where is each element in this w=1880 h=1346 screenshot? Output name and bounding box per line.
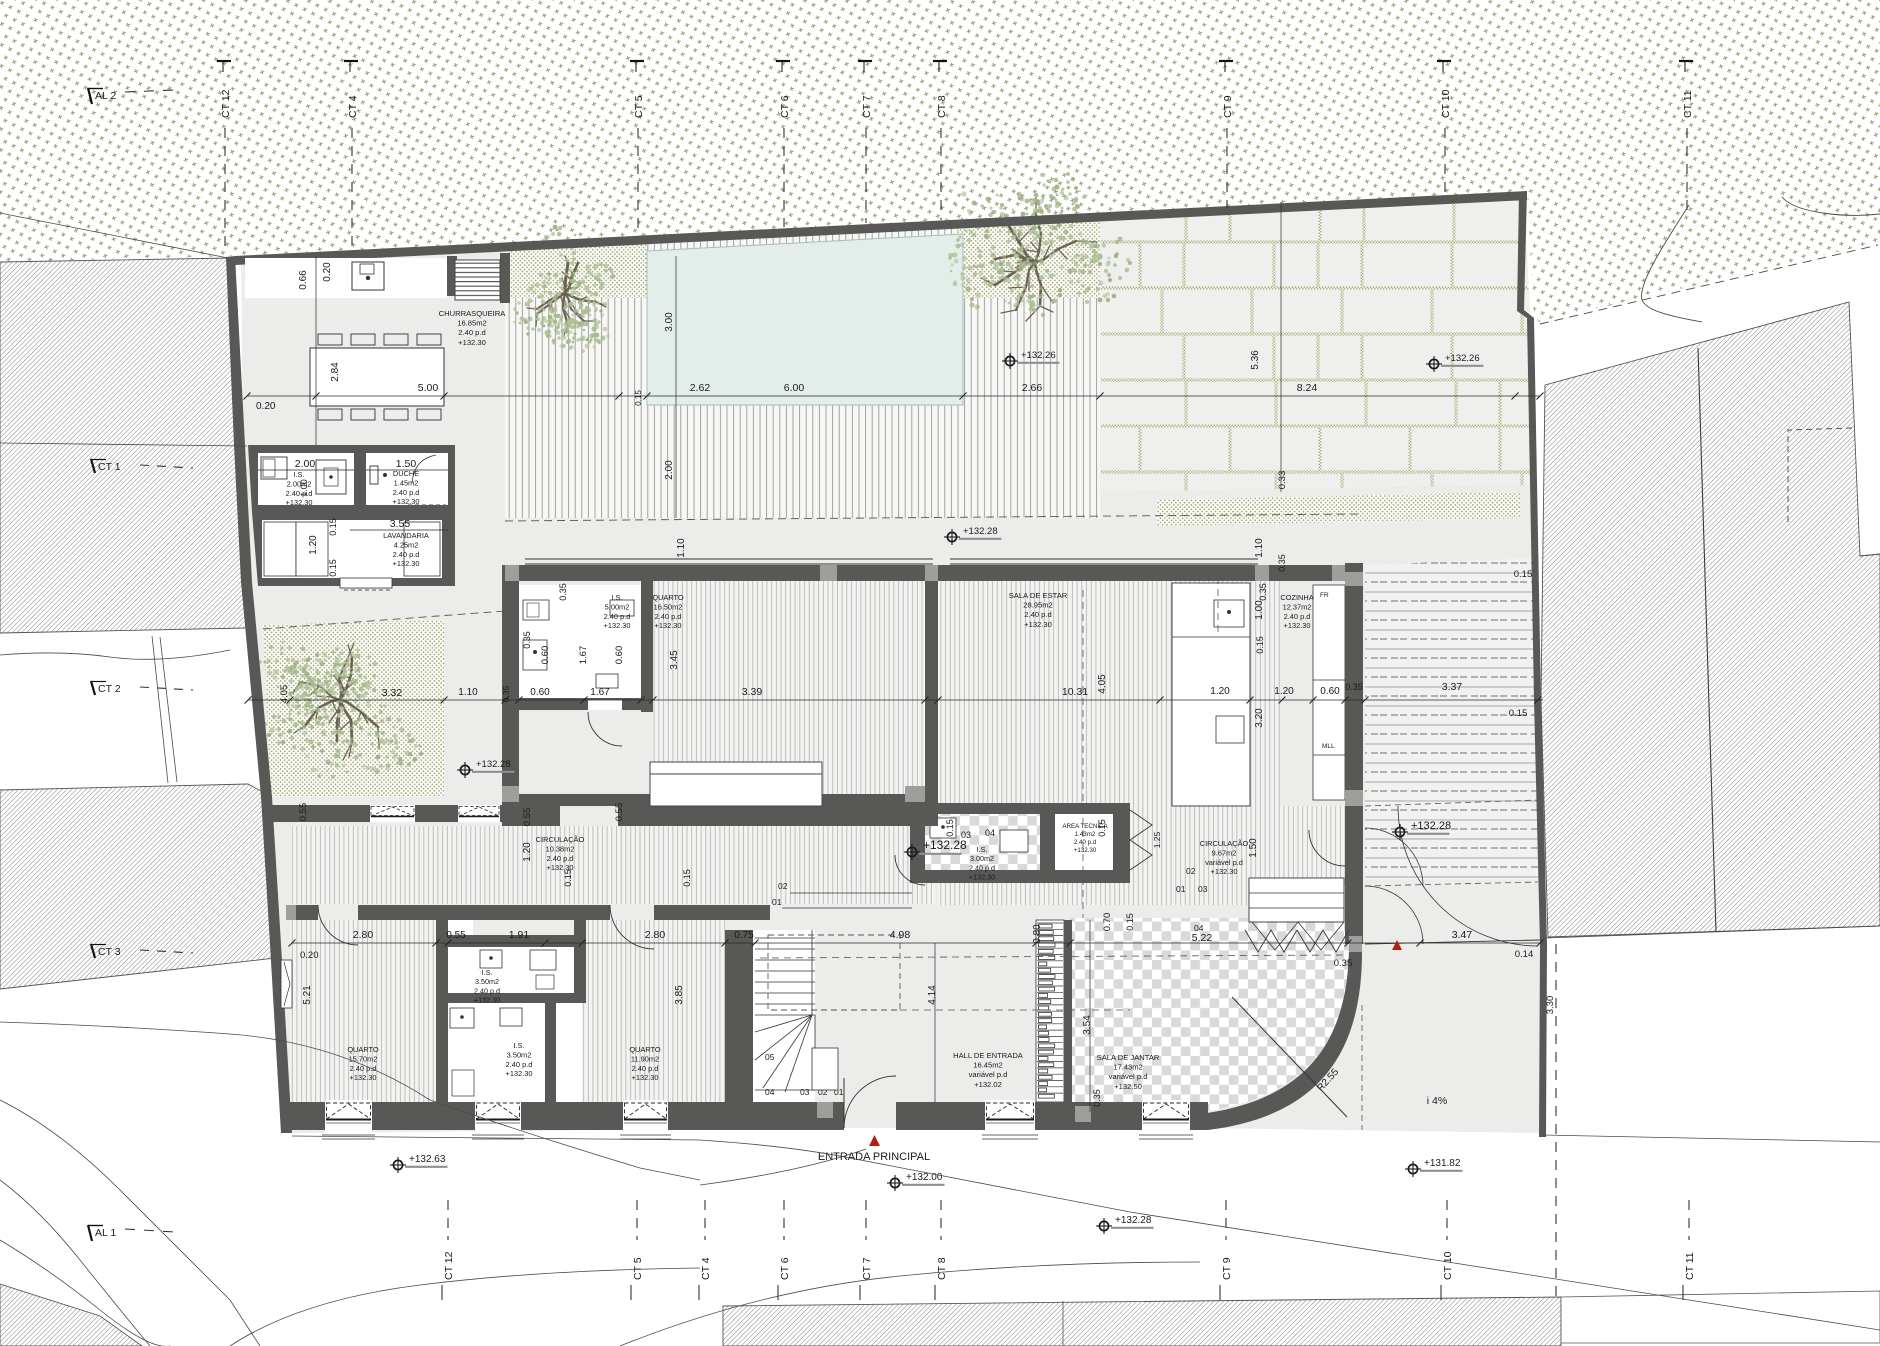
svg-text:1.10: 1.10 [458,687,478,698]
svg-text:2.40 p.d: 2.40 p.d [655,612,682,621]
svg-text:12.37m2: 12.37m2 [1283,602,1312,611]
svg-text:0.20: 0.20 [300,950,319,961]
svg-text:2.40 p.d: 2.40 p.d [474,986,500,995]
svg-text:CT 4: CT 4 [700,1257,712,1280]
svg-text:+132.26: +132.26 [1445,353,1480,364]
svg-text:1.67: 1.67 [578,646,589,665]
svg-text:CIRCULAÇÃO: CIRCULAÇÃO [536,835,585,844]
svg-text:I.S.: I.S. [513,1041,524,1050]
svg-text:+132.30: +132.30 [474,996,500,1005]
svg-text:02: 02 [1186,866,1196,876]
svg-text:AL 2: AL 2 [95,90,116,102]
svg-text:0.20: 0.20 [256,401,276,412]
svg-text:+132.30: +132.30 [1284,621,1311,630]
svg-text:+132.02: +132.02 [974,1080,1002,1089]
svg-text:3.00m2: 3.00m2 [970,854,994,863]
svg-text:4.98: 4.98 [890,929,911,941]
svg-text:+132.30: +132.30 [458,338,486,347]
svg-text:CT 8: CT 8 [936,95,948,118]
svg-text:I.S.: I.S. [977,845,988,854]
svg-text:5.00m2: 5.00m2 [605,602,630,611]
svg-text:+132.30: +132.30 [1211,867,1238,876]
svg-text:variável p.d: variável p.d [969,1070,1008,1079]
svg-text:FR: FR [1320,592,1329,599]
svg-text:2.00m2: 2.00m2 [287,479,312,488]
svg-text:2.40 p.d: 2.40 p.d [1024,610,1051,619]
svg-text:0.35: 0.35 [501,685,511,702]
svg-text:04: 04 [765,1087,775,1097]
svg-text:i 4%: i 4% [1427,1095,1447,1107]
svg-text:2.80: 2.80 [645,929,666,941]
svg-text:3.39: 3.39 [742,686,763,698]
svg-text:3.37: 3.37 [1442,681,1463,693]
svg-text:4.05: 4.05 [279,685,290,704]
svg-text:I.S.: I.S. [293,470,304,479]
svg-text:2.40 p.d: 2.40 p.d [393,550,420,559]
svg-text:16.85m2: 16.85m2 [457,319,487,328]
svg-text:+132.30: +132.30 [1024,620,1052,629]
svg-text:02: 02 [778,881,788,891]
svg-text:0.35: 0.35 [1345,682,1363,692]
svg-text:0.66: 0.66 [298,270,309,290]
svg-text:+132.30: +132.30 [969,873,995,882]
svg-text:variável p.d: variável p.d [1205,858,1243,867]
svg-text:CT 12: CT 12 [443,1251,455,1280]
svg-text:0.15: 0.15 [682,869,692,887]
svg-text:0.55: 0.55 [446,930,466,941]
svg-text:CT 8: CT 8 [936,1257,948,1280]
svg-text:HALL DE ENTRADA: HALL DE ENTRADA [953,1051,1024,1060]
svg-text:MLL: MLL [1322,743,1335,750]
svg-text:1.91: 1.91 [509,929,530,941]
svg-text:2.40 p.d: 2.40 p.d [506,1060,533,1069]
svg-text:+132.28: +132.28 [1411,820,1451,832]
svg-text:11.90m2: 11.90m2 [631,1054,659,1063]
svg-text:AREA TECNICA: AREA TECNICA [1062,823,1108,830]
svg-text:0.35: 0.35 [558,583,568,601]
svg-text:1.25: 1.25 [1152,831,1162,848]
svg-text:CT 12: CT 12 [220,89,232,118]
svg-text:1.10: 1.10 [1254,538,1265,558]
svg-text:3.30: 3.30 [1545,996,1556,1015]
svg-text:CT 5: CT 5 [632,1257,644,1280]
svg-text:+132.28: +132.28 [963,526,998,537]
svg-text:5.21: 5.21 [302,985,313,1005]
svg-text:0.15: 0.15 [945,819,955,837]
svg-text:0.55: 0.55 [298,803,309,822]
svg-text:LAVANDARIA: LAVANDARIA [383,531,429,540]
svg-text:0.60: 0.60 [1320,686,1340,697]
svg-text:16.50m2: 16.50m2 [654,602,683,611]
svg-text:0.15: 0.15 [1255,636,1265,654]
svg-text:I.S.: I.S. [611,593,622,602]
svg-text:9.67m2: 9.67m2 [1212,848,1237,857]
svg-text:+132.30: +132.30 [655,621,682,630]
svg-text:+132.30: +132.30 [350,1073,377,1082]
svg-text:2.40 p.d: 2.40 p.d [632,1064,659,1073]
svg-text:ENTRADA PRINCIPAL: ENTRADA PRINCIPAL [818,1151,930,1163]
svg-text:1.20: 1.20 [522,842,533,862]
svg-text:0.15: 0.15 [1514,569,1533,580]
svg-text:+132.30: +132.30 [393,497,420,506]
svg-text:CT 6: CT 6 [779,1257,791,1280]
svg-text:3.20: 3.20 [1254,708,1265,728]
svg-text:1.20: 1.20 [1210,686,1230,697]
svg-text:0.15: 0.15 [634,390,643,406]
svg-text:CT 10: CT 10 [1440,89,1452,118]
svg-text:2.40 p.d: 2.40 p.d [1284,612,1311,621]
svg-text:CT 10: CT 10 [1442,1251,1454,1280]
svg-text:0.60: 0.60 [540,646,551,665]
svg-text:DUCHE: DUCHE [393,469,419,478]
svg-text:8.24: 8.24 [1297,382,1318,394]
svg-text:3.50m2: 3.50m2 [507,1050,532,1059]
svg-text:05: 05 [765,1052,775,1062]
svg-text:0.80: 0.80 [1032,924,1043,944]
svg-text:2.80: 2.80 [353,929,374,941]
svg-text:0.15: 0.15 [1509,708,1528,719]
svg-text:+132.26: +132.26 [1021,350,1056,361]
svg-text:AL 1: AL 1 [95,1227,116,1239]
svg-text:2.40 p.d: 2.40 p.d [393,488,420,497]
svg-text:+132.28: +132.28 [923,838,967,852]
svg-text:variável p.d: variável p.d [1109,1072,1148,1081]
svg-text:1.50: 1.50 [1248,838,1259,858]
svg-text:10.38m2: 10.38m2 [546,844,575,853]
svg-text:0.35: 0.35 [1092,1089,1102,1107]
svg-text:28.95m2: 28.95m2 [1023,601,1053,610]
svg-text:3.55: 3.55 [390,518,411,530]
svg-text:CT 2: CT 2 [98,683,121,695]
svg-text:4.05: 4.05 [1097,674,1108,694]
svg-text:CT 11: CT 11 [1682,90,1694,118]
svg-text:CT 3: CT 3 [98,946,121,958]
svg-text:0.15: 0.15 [328,559,338,577]
svg-text:+132.63: +132.63 [409,1154,446,1165]
svg-text:SALA DE JANTAR: SALA DE JANTAR [1097,1053,1160,1062]
svg-text:QUARTO: QUARTO [347,1045,379,1054]
svg-text:1.20: 1.20 [1274,686,1294,697]
svg-text:0.15: 0.15 [1125,913,1135,931]
svg-text:1.00: 1.00 [1254,600,1265,620]
svg-text:03: 03 [800,1087,810,1097]
svg-text:I.S.: I.S. [482,968,493,977]
svg-text:01: 01 [772,897,782,907]
svg-text:3.47: 3.47 [1452,929,1473,941]
svg-text:10.31: 10.31 [1062,686,1088,698]
svg-text:0.75: 0.75 [734,930,754,941]
svg-text:0.55: 0.55 [522,808,533,827]
svg-text:0.33: 0.33 [1277,471,1288,490]
svg-text:3.85: 3.85 [674,985,685,1005]
svg-text:0.60: 0.60 [530,687,550,698]
svg-text:15.70m2: 15.70m2 [349,1054,378,1063]
svg-text:1.45m2: 1.45m2 [394,478,419,487]
svg-text:0.20: 0.20 [322,262,333,282]
svg-text:CT 9: CT 9 [1221,1257,1233,1280]
svg-text:3.50m2: 3.50m2 [475,977,499,986]
svg-text:+132.30: +132.30 [286,498,313,507]
svg-text:+131.82: +131.82 [1424,1158,1461,1169]
svg-text:2.40 p.d: 2.40 p.d [547,854,574,863]
svg-text:0.14: 0.14 [1515,949,1534,960]
svg-text:CT 11: CT 11 [1684,1252,1696,1280]
svg-text:5.00: 5.00 [418,382,439,394]
svg-text:0.35: 0.35 [1334,958,1353,969]
svg-text:0.70: 0.70 [1102,913,1113,932]
svg-text:3.45: 3.45 [669,650,680,670]
svg-text:CT 1: CT 1 [98,461,121,473]
svg-text:3.54: 3.54 [1082,1015,1093,1035]
svg-text:+132.30: +132.30 [1074,847,1097,854]
svg-text:CHURRASQUEIRA: CHURRASQUEIRA [439,309,507,318]
svg-text:5.22: 5.22 [1192,932,1213,944]
svg-text:+132.30: +132.30 [632,1073,659,1082]
svg-text:2.62: 2.62 [690,382,711,394]
svg-text:01: 01 [1176,884,1186,894]
svg-text:2.40 p.d: 2.40 p.d [969,863,995,872]
svg-text:0.55: 0.55 [614,803,625,822]
svg-text:1.43m2: 1.43m2 [1075,831,1096,838]
svg-text:+132.30: +132.30 [604,621,631,630]
svg-text:+132.30: +132.30 [547,863,574,872]
svg-text:0.60: 0.60 [614,646,625,665]
svg-text:2.40 p.d: 2.40 p.d [286,489,313,498]
svg-text:QUARTO: QUARTO [629,1045,661,1054]
svg-text:3.00: 3.00 [664,312,675,332]
svg-text:0.35: 0.35 [1258,583,1268,601]
svg-text:CT 7: CT 7 [861,1257,873,1280]
svg-text:CT 5: CT 5 [633,95,645,118]
svg-text:6.00: 6.00 [784,382,805,394]
svg-text:2.00: 2.00 [664,460,675,480]
svg-text:2.40 p.d: 2.40 p.d [604,612,631,621]
svg-text:CT 7: CT 7 [861,95,873,118]
svg-text:CIRCULAÇÃO: CIRCULAÇÃO [1200,839,1249,848]
svg-text:1.10: 1.10 [676,538,687,558]
svg-text:+132.00: +132.00 [906,1172,943,1183]
svg-text:0.35: 0.35 [522,631,532,649]
svg-text:CT 9: CT 9 [1222,95,1234,118]
svg-text:0.15: 0.15 [328,518,338,536]
svg-text:2.40 p.d: 2.40 p.d [1074,839,1097,846]
svg-text:QUARTO: QUARTO [652,593,684,602]
svg-text:SALA DE ESTAR: SALA DE ESTAR [1009,591,1068,600]
svg-text:+132.30: +132.30 [506,1069,533,1078]
svg-text:2.00: 2.00 [295,458,316,470]
svg-text:COZINHA: COZINHA [1280,593,1313,602]
svg-text:3.32: 3.32 [382,687,403,699]
svg-text:+132.28: +132.28 [476,759,511,770]
svg-text:1.67: 1.67 [590,687,610,698]
svg-text:2.66: 2.66 [1022,382,1043,394]
svg-text:+132.30: +132.30 [393,559,420,568]
svg-text:03: 03 [1198,884,1208,894]
svg-text:2.40 p.d: 2.40 p.d [458,328,485,337]
svg-text:2.84: 2.84 [330,362,341,382]
svg-text:+132.50: +132.50 [1114,1082,1142,1091]
svg-text:+132.28: +132.28 [1115,1215,1152,1226]
svg-text:04: 04 [985,828,995,838]
svg-text:0.35: 0.35 [1277,554,1287,572]
svg-text:4.25m2: 4.25m2 [394,540,419,549]
svg-text:5.36: 5.36 [1250,350,1261,370]
svg-text:16.45m2: 16.45m2 [973,1061,1003,1070]
svg-text:1.20: 1.20 [308,535,319,555]
svg-text:CT 4: CT 4 [347,95,359,118]
svg-text:CT 6: CT 6 [779,95,791,118]
svg-text:4.14: 4.14 [927,985,938,1005]
svg-text:17.43m2: 17.43m2 [1113,1063,1143,1072]
